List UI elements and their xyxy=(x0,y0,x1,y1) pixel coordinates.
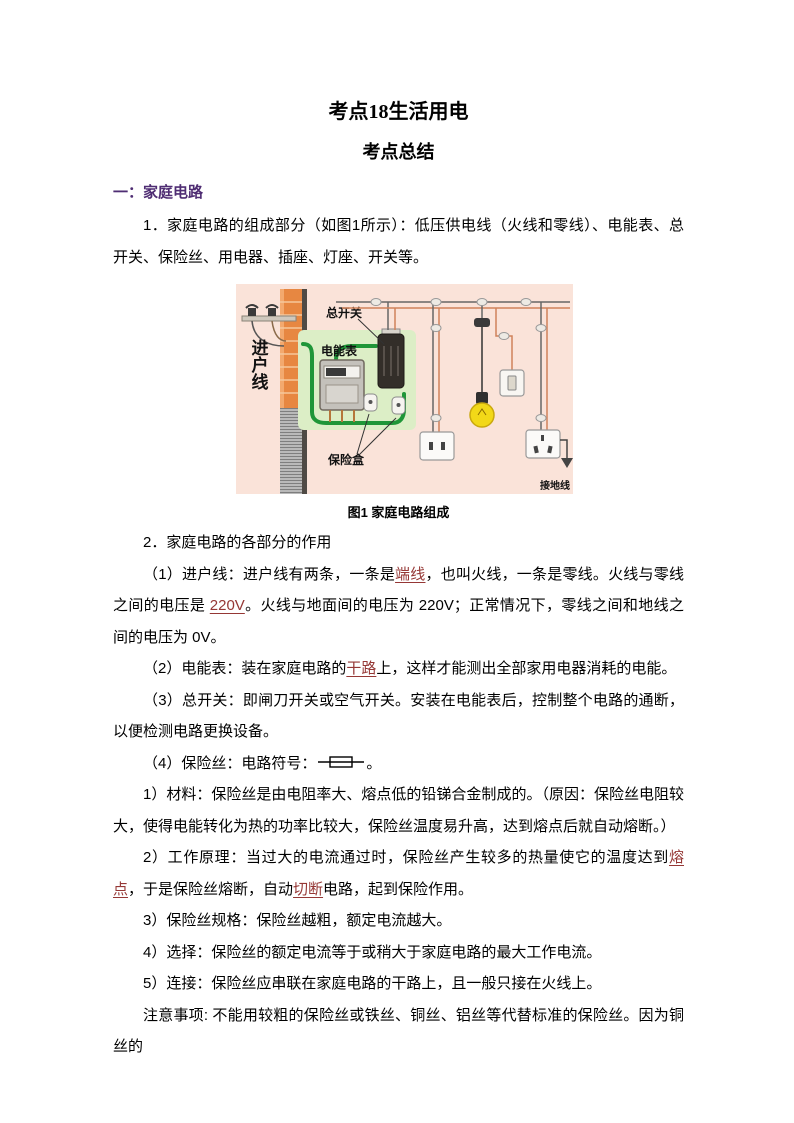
three-pin-socket xyxy=(526,430,560,458)
paragraph-energy-meter: （2）电能表：装在家庭电路的干路上，这样才能测出全部家用电器消耗的电能。 xyxy=(113,653,684,685)
paragraph-fuse-connection: 5）连接：保险丝应串联在家庭电路的干路上，且一般只接在火线上。 xyxy=(113,968,684,1000)
two-pin-socket xyxy=(420,432,454,460)
paragraph-fuse-selection: 4）选择：保险丝的额定电流等于或稍大于家庭电路的最大工作电流。 xyxy=(113,937,684,969)
text-run: （2）电能表：装在家庭电路的 xyxy=(143,660,346,677)
paragraph-incoming-line: （1）进户线：进户线有两条，一条是端线，也叫火线，一条是零线。火线与零线之间的电… xyxy=(113,559,684,654)
wall-switch xyxy=(500,370,524,396)
text-run: 2）工作原理：当过大的电流通过时，保险丝产生较多的热量使它的温度达到 xyxy=(143,849,669,866)
text-run: ，于是保险丝熔断，自动 xyxy=(128,881,293,898)
label-energy-meter: 电能表 xyxy=(321,343,358,358)
text-run: （1）进户线：进户线有两条，一条是 xyxy=(143,566,395,583)
paragraph-note: 注意事项: 不能用较粗的保险丝或铁丝、铜丝、铝丝等代替标准的保险丝。因为铜丝的 xyxy=(113,1000,684,1063)
text-run: 电路，起到保险作用。 xyxy=(323,881,473,898)
keyword-qieduan: 切断 xyxy=(293,881,323,898)
paragraph-main-switch: （3）总开关：即闸刀开关或空气开关。安装在电能表后，控制整个电路的通断，以便检测… xyxy=(113,685,684,748)
paragraph-fuse-principle: 2）工作原理：当过大的电流通过时，保险丝产生较多的热量使它的温度达到熔点，于是保… xyxy=(113,842,684,905)
paragraph-fuse-material: 1）材料：保险丝是由电阻率大、熔点低的铅锑合金制成的。（原因：保险丝电阻较大，使… xyxy=(113,779,684,842)
text-run: （4）保险丝：电路符号： xyxy=(143,755,316,772)
label-incoming-line: 进户线 xyxy=(249,339,269,391)
keyword-220v: 220V xyxy=(210,597,245,614)
paragraph-fuse-spec: 3）保险丝规格：保险丝越粗，额定电流越大。 xyxy=(113,905,684,937)
label-ground-wire: 接地线 xyxy=(540,479,570,492)
figure-caption: 图1 家庭电路组成 xyxy=(113,503,684,523)
paragraph-fuse-symbol: （4）保险丝：电路符号：。 xyxy=(113,748,684,780)
text-run: 上，这样才能测出全部家用电器消耗的电能。 xyxy=(376,660,676,677)
page-title: 考点18生活用电 xyxy=(113,98,684,126)
fuse-circuit-symbol-icon xyxy=(318,755,364,769)
paragraph-parts-function-heading: 2．家庭电路的各部分的作用 xyxy=(113,527,684,559)
keyword-ganlu: 干路 xyxy=(346,660,376,677)
keyword-duanxian: 端线 xyxy=(395,566,425,583)
section-heading-household-circuit: 一：家庭电路 xyxy=(113,181,684,205)
light-bulb xyxy=(470,403,494,427)
household-circuit-illustration: 进户线 电能表 总开关 xyxy=(236,284,573,494)
main-switch xyxy=(378,329,404,388)
text-run: 。 xyxy=(366,755,381,772)
paragraph-circuit-components: 1．家庭电路的组成部分（如图1所示）：低压供电线（火线和零线）、电能表、总开关、… xyxy=(113,210,684,273)
document-page: 考点18生活用电 考点总结 一：家庭电路 1．家庭电路的组成部分（如图1所示）：… xyxy=(0,0,794,1123)
page-subtitle: 考点总结 xyxy=(113,139,684,165)
figure-household-circuit: 进户线 电能表 总开关 xyxy=(236,284,573,494)
